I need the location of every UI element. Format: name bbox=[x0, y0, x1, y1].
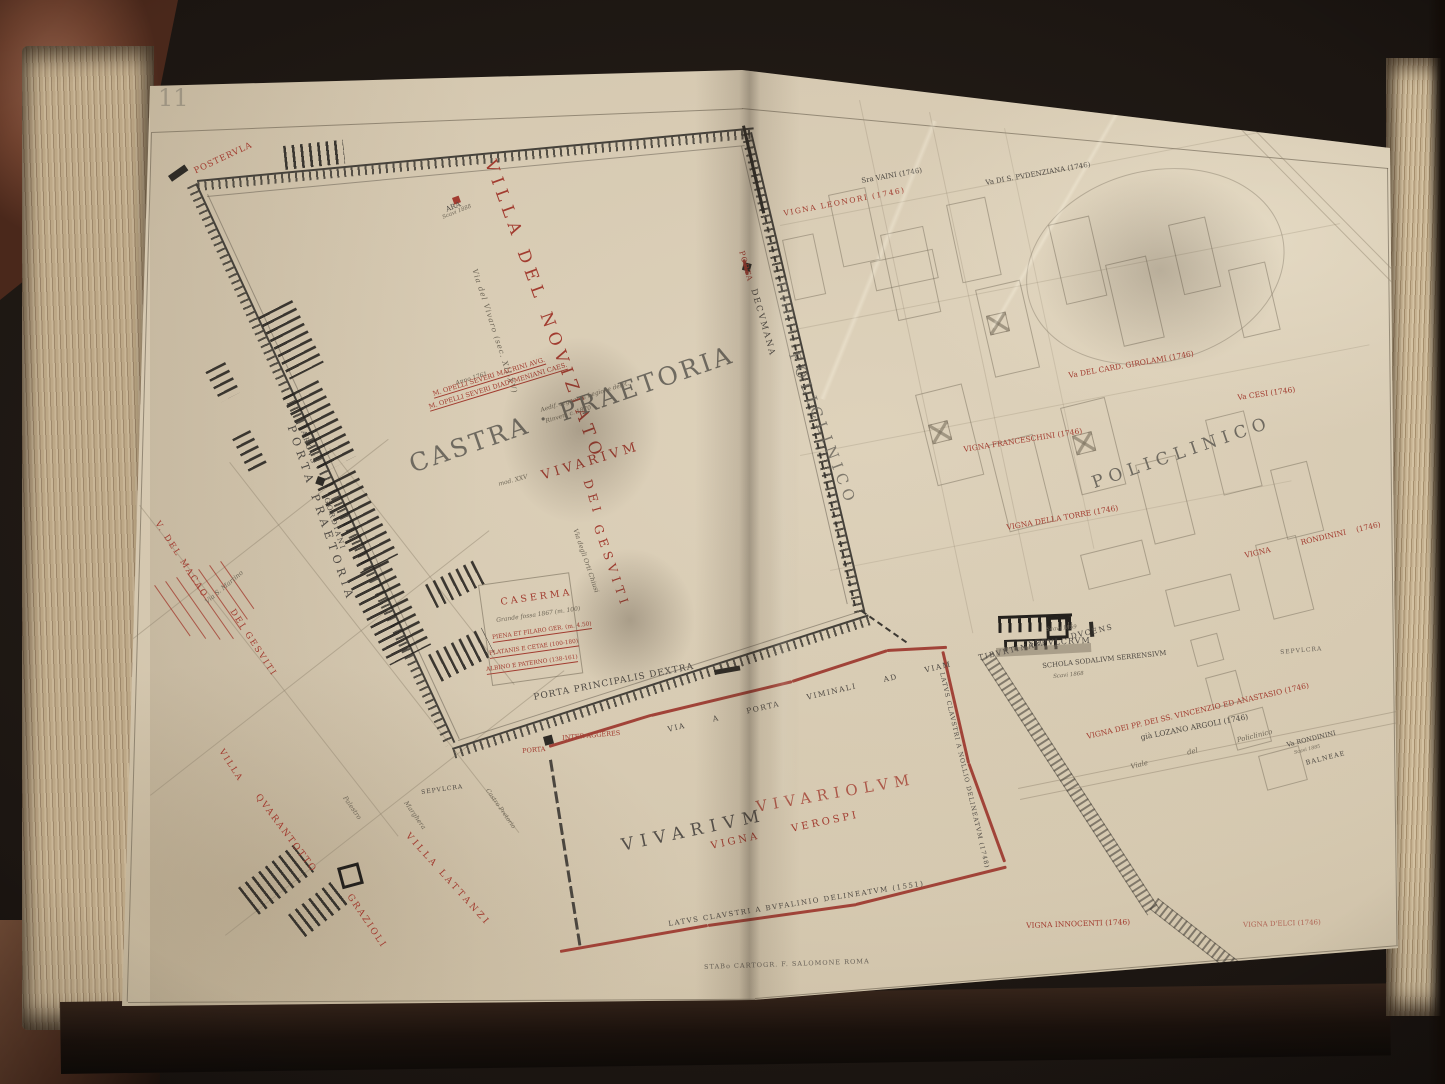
railway-band bbox=[981, 652, 1159, 915]
shadow-blob bbox=[990, 130, 1330, 410]
map-plate-spread: 11 POSTERVLA ARA Scavi 1888 VILLA DEL NO… bbox=[0, 0, 1445, 1084]
label-vigna-elci: VIGNA D'ELCI (1746) bbox=[1243, 919, 1321, 929]
shadow-blob bbox=[540, 520, 720, 720]
label-schola-note: Scavi 1868 bbox=[1053, 672, 1084, 681]
label-sepolcra-right: SEPVLCRA bbox=[1280, 646, 1323, 656]
pavilion-outline bbox=[1165, 574, 1240, 627]
label-porta-red2: PORTA bbox=[522, 746, 546, 754]
plate-number: 11 bbox=[158, 86, 189, 110]
pavilion-outline bbox=[1080, 540, 1151, 590]
right-edge-shadow bbox=[1428, 0, 1445, 1084]
viale-policlinico-road bbox=[1020, 714, 1440, 800]
label-vincenzio-anastasio: VIGNA DEI PP. DEI SS. VINCENZIO ED ANAST… bbox=[1086, 682, 1310, 741]
wall-corner-dashed bbox=[861, 610, 907, 643]
pavilion-outline bbox=[1190, 633, 1224, 667]
vivarium-red-wall bbox=[887, 646, 947, 652]
label-vigna-innocenti: VIGNA INNOCENTI (1746) bbox=[1026, 918, 1130, 929]
pavilion-outline bbox=[1270, 461, 1324, 540]
book-gutter-shadow bbox=[695, 55, 800, 1015]
street-line bbox=[830, 480, 1292, 571]
railway-band bbox=[1149, 898, 1260, 989]
photo-of-open-atlas: 11 POSTERVLA ARA Scavi 1888 VILLA DEL NO… bbox=[0, 0, 1445, 1084]
shadow-blob bbox=[470, 300, 690, 560]
label-latus-nollio: LATVS CLAVSTRI A NOLLIO DELINEATVM (1748… bbox=[938, 672, 989, 869]
